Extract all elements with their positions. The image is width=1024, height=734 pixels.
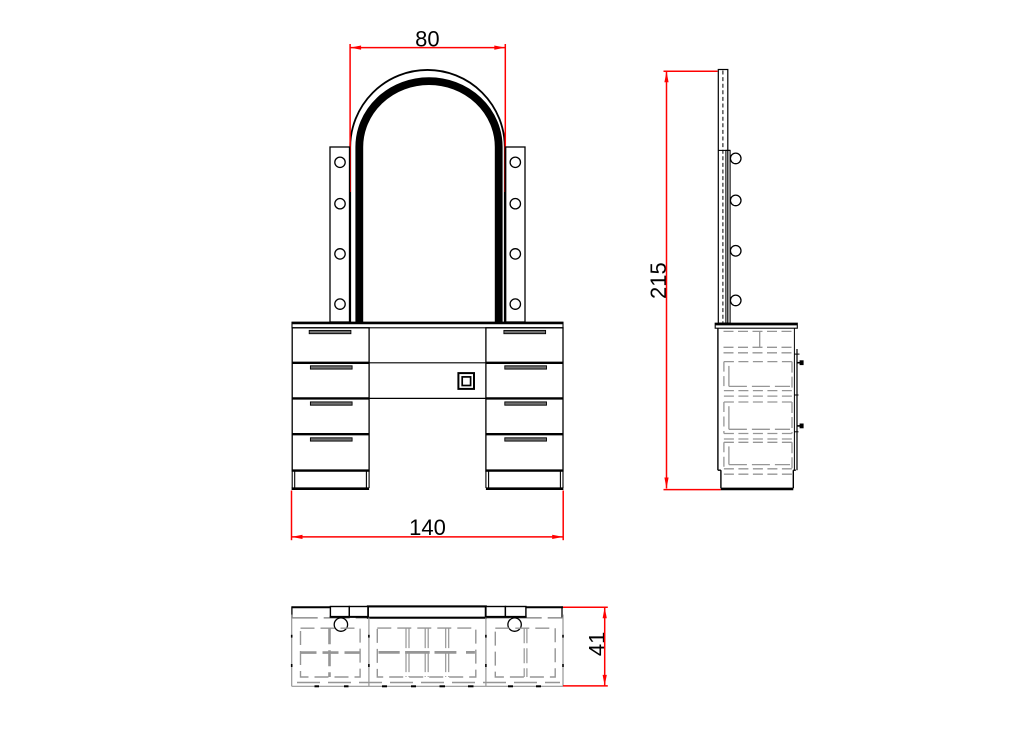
svg-text:41: 41	[585, 632, 610, 656]
